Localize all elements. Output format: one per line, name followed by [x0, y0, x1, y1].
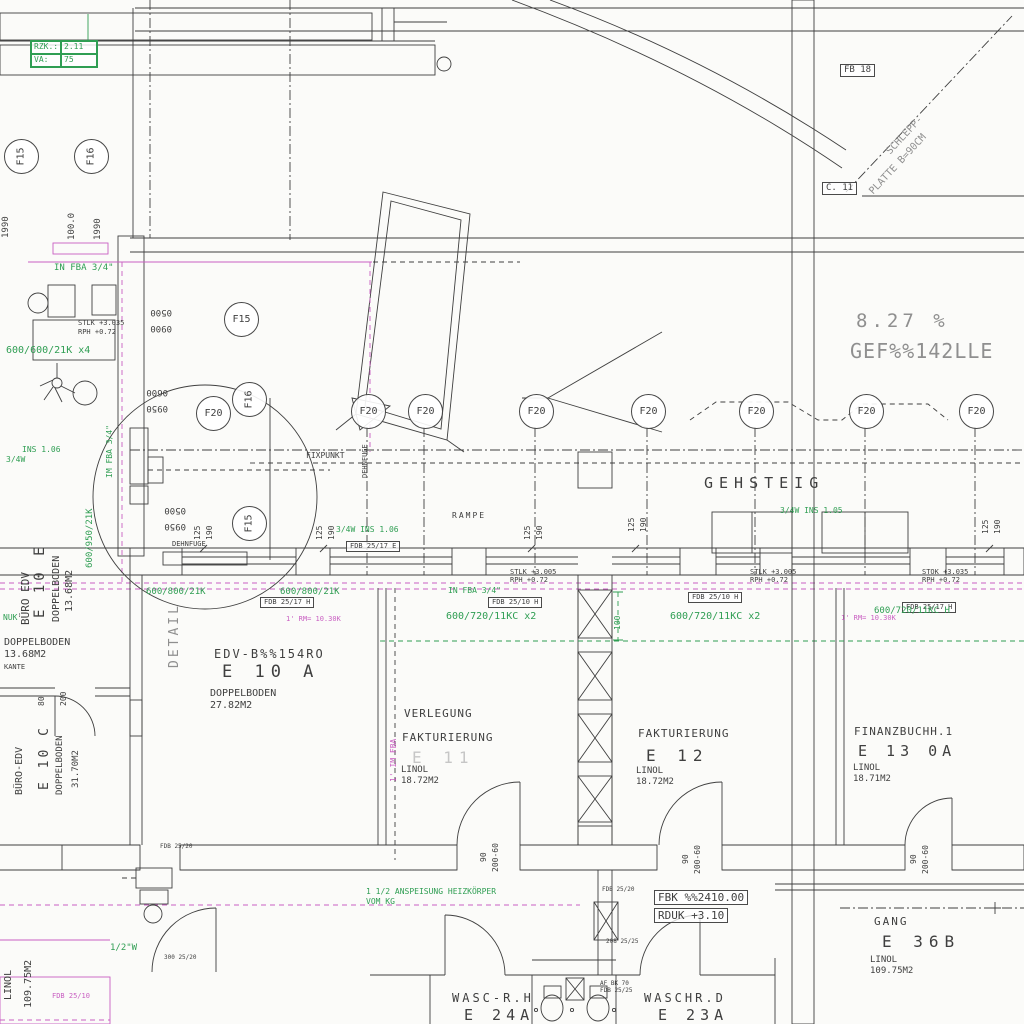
grid-bubble-label: F16	[86, 147, 97, 165]
grid-bubble-f20: F20	[739, 394, 774, 429]
grid-bubble-f15: F15	[4, 139, 39, 174]
grid-bubble-f20: F20	[959, 394, 994, 429]
grid-bubble-f20: F20	[408, 394, 443, 429]
grid-bubble-label: F16	[244, 390, 255, 408]
grid-bubble-f16: F16	[232, 382, 267, 417]
grid-bubble-label: F20	[639, 406, 657, 417]
grid-bubble-f15: F15	[232, 506, 267, 541]
grid-bubble-f20: F20	[196, 396, 231, 431]
grid-bubble-label: F20	[747, 406, 765, 417]
grid-bubble-f20: F20	[849, 394, 884, 429]
grid-bubble-label: F20	[527, 406, 545, 417]
grid-bubble-label: F20	[857, 406, 875, 417]
grid-bubble-label: F15	[232, 314, 250, 325]
grid-bubble-label: F15	[16, 147, 27, 165]
grid-bubble-label: F15	[244, 514, 255, 532]
grid-bubble-f15: F15	[224, 302, 259, 337]
grid-bubble-f16: F16	[74, 139, 109, 174]
grid-bubble-f20: F20	[631, 394, 666, 429]
grid-bubble-layer: F15F16F15F16F20F20F20F20F20F20F20F20F15	[0, 0, 1024, 1024]
floor-plan-canvas: RZK.: 2.11 VA: 75 1990100.01990IN FBA 3/…	[0, 0, 1024, 1024]
grid-bubble-f20: F20	[519, 394, 554, 429]
grid-bubble-label: F20	[416, 406, 434, 417]
grid-bubble-f20: F20	[351, 394, 386, 429]
grid-bubble-label: F20	[204, 408, 222, 419]
grid-bubble-label: F20	[359, 406, 377, 417]
grid-bubble-label: F20	[967, 406, 985, 417]
